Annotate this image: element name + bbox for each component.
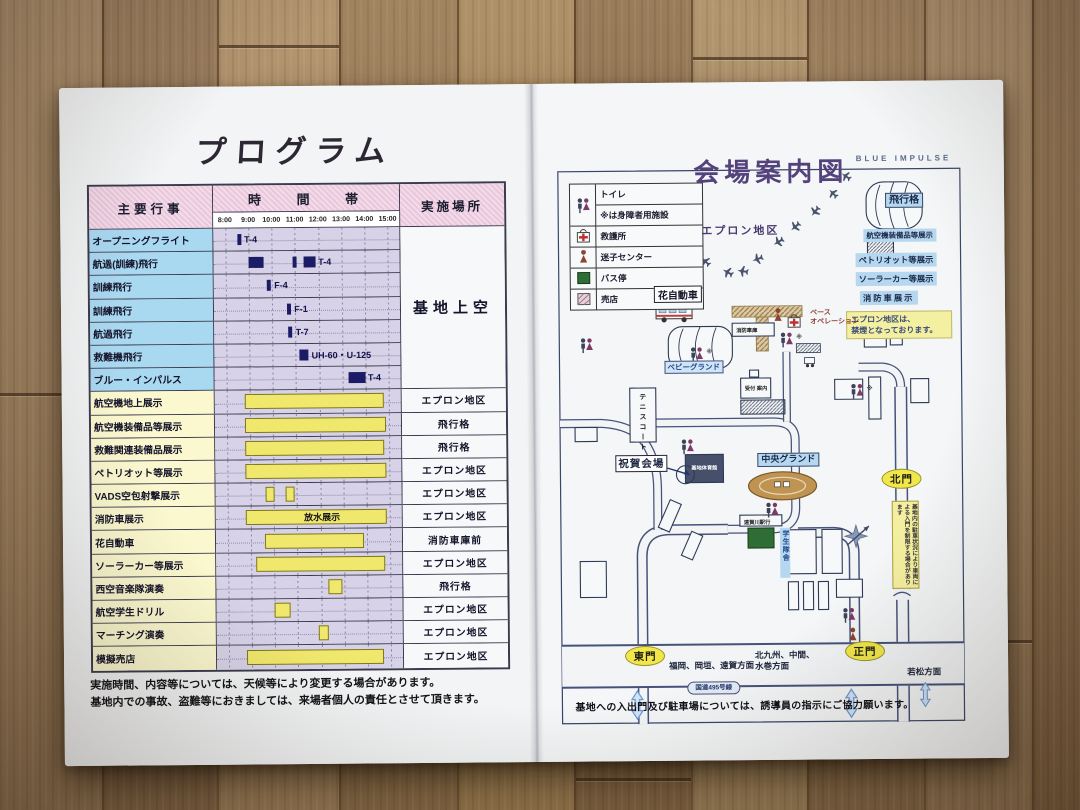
gantt-bar — [266, 487, 275, 502]
gantt-cell — [216, 529, 403, 554]
event-row-label: 模擬売店 — [93, 646, 217, 670]
first-aid-icon — [570, 226, 596, 247]
gantt-gridline — [388, 320, 389, 342]
gantt-gridline — [295, 228, 296, 250]
time-tick: 11:00 — [286, 216, 304, 223]
gantt-gridline — [389, 366, 390, 388]
gantt-gridline — [389, 413, 390, 435]
gantt-bar — [265, 533, 365, 549]
gantt-gridline — [319, 367, 320, 389]
event-row-label: ソーラーカー等展示 — [92, 553, 216, 577]
reception-label: 受付 案内 — [745, 384, 768, 392]
event-row-label: 航過飛行 — [90, 322, 214, 346]
gantt-gridline — [271, 228, 272, 250]
gantt-gridline — [390, 506, 391, 528]
event-row-label: 救難関連装備品展示 — [91, 437, 215, 461]
map-bottom-note: 基地への入出門及び駐車場については、誘導員の指示にご協力願います。 — [575, 696, 913, 714]
program-notes: 実施時間、内容等については、天候等により変更する場合があります。 基地内での事故… — [90, 674, 514, 712]
program-booklet: プログラム 主要行事 時 間 帯 実施場所 8:00 9:00 10:00 11… — [59, 80, 1009, 766]
gantt-gridline — [226, 368, 227, 390]
gantt-gridline — [225, 229, 226, 251]
gantt-gridline — [228, 530, 229, 552]
gantt-gridline — [388, 274, 389, 296]
place-cell: エプロン地区 — [404, 644, 508, 668]
gantt-gridline — [272, 275, 273, 297]
gantt-gridline — [365, 251, 366, 273]
student-dorm-label: 学生隊舎 — [780, 528, 790, 578]
gantt-gridline — [365, 297, 366, 319]
gantt-bar — [285, 487, 294, 502]
gantt-cell: T-4 — [215, 366, 402, 391]
baby-ground-label: ベビーグランド — [664, 360, 723, 374]
venue-map-title: 会場案内図 — [671, 151, 871, 190]
gantt-gridline — [225, 275, 226, 297]
gantt-cell — [217, 621, 404, 646]
gantt-cell: F-1 — [214, 297, 401, 322]
gantt-gridline — [388, 297, 389, 319]
gantt-gridline — [297, 483, 298, 505]
legend-lost-child: 迷子センター — [597, 252, 653, 263]
gantt-gridline — [364, 227, 365, 249]
gantt-gridline — [389, 390, 390, 412]
gantt-gridline — [319, 297, 320, 319]
awning — [796, 343, 820, 352]
gantt-gridline — [252, 623, 253, 645]
gym-label: 基地体育館 — [685, 464, 723, 471]
gantt-gridline — [273, 367, 274, 389]
base-operations-label: ベース オペレーション — [810, 309, 859, 327]
floor-plank — [1032, 0, 1080, 810]
time-tick: 13:00 — [332, 216, 350, 223]
event-row-label: 航空学生ドリル — [93, 600, 217, 624]
gantt-gridline — [250, 484, 251, 506]
solar-car-exhibit-label: ソーラーカー等展示 — [856, 271, 937, 286]
place-cell: エプロン地区 — [403, 504, 507, 528]
gantt-bar-label: T-4 — [318, 257, 331, 267]
gantt-gridline — [228, 600, 229, 622]
gantt-bar-label: F-1 — [294, 304, 308, 314]
gantt-gridline — [249, 298, 250, 320]
compass-icon — [845, 525, 869, 547]
gantt-gridline — [342, 367, 343, 389]
gantt-gridline — [225, 252, 226, 274]
gantt-cell — [216, 552, 403, 577]
gantt-bar-label: T-7 — [296, 327, 309, 337]
gantt-cell — [215, 413, 402, 438]
gantt-bar — [245, 440, 384, 456]
gantt-gridline — [391, 621, 392, 643]
time-tick: 15:00 — [379, 215, 397, 222]
event-row-label: VADS空包射撃展示 — [92, 484, 216, 508]
central-ground-track — [748, 472, 816, 501]
station-bus-label: 遠賀川駅行 — [744, 518, 771, 526]
place-cell-sky: 基地上空 — [400, 226, 505, 389]
gantt-gridline — [228, 623, 229, 645]
bus-stop-square — [748, 528, 774, 548]
hangar-label: 飛行格 — [885, 193, 923, 208]
gantt-bar-label: UH-60・U-125 — [312, 348, 372, 362]
gantt-gridline — [345, 622, 346, 644]
legend-aid: 救護所 — [596, 231, 626, 242]
direction-kitakyushu: 北九州、中間、 水巻方面 — [755, 650, 815, 673]
event-row-label: 航空機装備品等展示 — [91, 414, 215, 438]
gantt-gridline — [296, 367, 297, 389]
program-title: プログラム — [58, 124, 532, 173]
legend-toilet: トイレ — [596, 189, 626, 200]
gantt-gridline — [226, 345, 227, 367]
gantt-gridline — [272, 298, 273, 320]
place-cell: 消防車庫前 — [403, 528, 507, 552]
time-tick: 9:00 — [241, 216, 255, 223]
event-row-label: 花自動車 — [92, 530, 216, 554]
gantt-gridline — [227, 484, 228, 506]
event-row-label: 航過(訓練)飛行 — [90, 252, 214, 276]
central-ground-label: 中央グランド — [757, 453, 819, 467]
gantt-cell: T-7 — [214, 320, 401, 345]
celebration-venue-label: 祝賀会場 — [615, 455, 667, 472]
gantt-gridline — [272, 344, 273, 366]
place-cell: 飛行格 — [402, 435, 506, 459]
apron-area-label: エプロン地区 — [701, 222, 779, 239]
gantt-gridline — [249, 368, 250, 390]
event-row-label: 訓練飛行 — [90, 298, 214, 322]
gantt-bar — [303, 257, 316, 268]
event-row-label: 訓練飛行 — [90, 275, 214, 299]
gantt-cell: T-4 — [213, 227, 400, 252]
place-cell: 飛行格 — [402, 412, 506, 436]
gantt-gridline — [344, 599, 345, 621]
gantt-bar — [245, 416, 385, 432]
gantt-gridline — [226, 321, 227, 343]
gantt-gridline — [367, 483, 368, 505]
gantt-gridline — [249, 344, 250, 366]
gantt-gridline — [320, 483, 321, 505]
fire-truck-exhibit-label: 消防車展示 — [860, 291, 918, 306]
gantt-gridline — [249, 321, 250, 343]
gantt-gridline — [296, 344, 297, 366]
cart-icon — [804, 358, 814, 368]
gantt-bar — [289, 326, 293, 337]
note-line: 基地内での事故、盗難等におきましては、来場者個人の責任とさせて頂きます。 — [90, 691, 514, 712]
fire-garage-label: 消防車庫 — [736, 326, 757, 334]
gantt-gridline — [228, 576, 229, 598]
wc-accessible-mark: ※ — [796, 334, 802, 341]
gantt-gridline — [389, 436, 390, 458]
wc-accessible-mark: ※ — [867, 385, 873, 392]
gantt-cell — [215, 459, 402, 484]
gantt-bar — [267, 280, 271, 291]
gantt-gridline — [390, 552, 391, 574]
toilet-icon — [570, 184, 596, 226]
gantt-cell — [215, 389, 402, 414]
direction-wakamatsu: 若松方面 — [907, 666, 941, 678]
gantt-bar — [247, 649, 384, 665]
gantt-gridline — [298, 622, 299, 644]
route-495-label: 国道495号線 — [687, 681, 740, 694]
gantt-gridline — [321, 599, 322, 621]
gantt-gridline — [251, 553, 252, 575]
gantt-gridline — [390, 459, 391, 481]
gantt-gridline — [391, 598, 392, 620]
event-row-label: 消防車展示 — [92, 507, 216, 531]
gantt-gridline — [342, 320, 343, 342]
gantt-gridline — [342, 297, 343, 319]
event-row-label: 西空音楽隊演奏 — [92, 577, 216, 601]
legend-shop: 売店 — [597, 294, 618, 305]
gantt-bar — [319, 626, 329, 641]
gantt-gridline — [272, 251, 273, 273]
time-tick: 10:00 — [262, 216, 280, 223]
gantt-gridline — [227, 461, 228, 483]
gantt-gridline — [251, 599, 252, 621]
gantt-gridline — [251, 530, 252, 552]
gantt-gridline — [390, 482, 391, 504]
time-tick: 8:00 — [218, 217, 232, 224]
place-cell: エプロン地区 — [404, 597, 508, 621]
gantt-gridline — [251, 576, 252, 598]
event-row-label: オープニングフライト — [89, 229, 213, 253]
gantt-gridline — [341, 251, 342, 273]
gantt-bar-label: F-4 — [274, 281, 288, 291]
gantt-gridline — [321, 576, 322, 598]
gantt-gridline — [342, 274, 343, 296]
gantt-gridline — [227, 414, 228, 436]
time-axis: 8:00 9:00 10:00 11:00 12:00 13:00 14:00 … — [213, 211, 400, 229]
gantt-gridline — [368, 598, 369, 620]
bus-stop-icon — [571, 268, 597, 289]
col-header-events: 主要行事 — [89, 186, 213, 230]
gantt-cell — [216, 482, 403, 507]
place-cell: エプロン地区 — [403, 551, 507, 575]
gantt-cell — [215, 436, 402, 461]
gantt-gridline — [365, 274, 366, 296]
gantt-gridline — [227, 507, 228, 529]
gantt-gridline — [365, 320, 366, 342]
gantt-bar — [275, 603, 291, 618]
event-row-label: ブルー・インパルス — [91, 368, 215, 392]
place-cell: エプロン地区 — [402, 389, 506, 413]
gantt-bar — [246, 463, 386, 479]
gantt-gridline — [227, 437, 228, 459]
program-page: プログラム 主要行事 時 間 帯 実施場所 8:00 9:00 10:00 11… — [59, 84, 536, 766]
gantt-bar-label: T-4 — [368, 373, 381, 383]
gantt-bar — [287, 303, 291, 314]
event-row-label: 航空機地上展示 — [91, 391, 215, 415]
gantt-bar-label: T-4 — [244, 235, 257, 245]
wc-accessible-mark: ※ — [706, 348, 712, 355]
gantt-gridline — [343, 483, 344, 505]
gantt-gridline — [344, 575, 345, 597]
time-tick: 14:00 — [355, 215, 373, 222]
gantt-bar — [245, 393, 384, 409]
gantt-cell: T-4 — [213, 250, 400, 275]
gantt-gridline — [341, 228, 342, 250]
tennis-court-label: テニスコート — [637, 393, 648, 453]
gantt-gridline — [318, 228, 319, 250]
lost-child-icon — [570, 247, 596, 268]
gantt-gridline — [389, 343, 390, 365]
shop-icon — [571, 289, 597, 309]
gantt-gridline — [367, 529, 368, 551]
gantt-gridline — [391, 575, 392, 597]
gantt-gridline — [275, 622, 276, 644]
place-cell: 飛行格 — [403, 574, 507, 598]
gantt-gridline — [226, 391, 227, 413]
event-row-label: ペトリオット等展示 — [91, 461, 215, 485]
gantt-bar — [248, 257, 263, 268]
gantt-gridline — [388, 227, 389, 249]
legend-bus: バス停 — [597, 273, 627, 284]
gantt-gridline — [228, 553, 229, 575]
program-table: 主要行事 時 間 帯 実施場所 8:00 9:00 10:00 11:00 12… — [87, 181, 510, 672]
equipment-exhibit-label: 航空機装備品等展示 — [863, 228, 936, 242]
event-row-label: マーチング演奏 — [93, 623, 217, 647]
flower-car-label: 花自動車 — [654, 286, 702, 303]
gantt-bar — [238, 234, 242, 245]
place-cell: エプロン地区 — [404, 620, 508, 644]
gantt-gridline — [229, 646, 230, 669]
legend-toilet-note: ※は身障者用施設 — [596, 209, 669, 220]
gantt-gridline — [274, 576, 275, 598]
gantt-gridline — [368, 622, 369, 644]
gantt-cell: F-4 — [214, 274, 401, 299]
time-tick: 12:00 — [309, 216, 327, 223]
direction-fukuoka: 福岡、岡垣、遠賀方面 — [669, 660, 754, 672]
gantt-gridline — [319, 321, 320, 343]
gantt-bar — [299, 349, 308, 360]
gantt-gridline — [390, 529, 391, 551]
col-header-timeband: 時 間 帯 — [213, 184, 400, 213]
gantt-gridline — [249, 275, 250, 297]
gantt-bar — [256, 556, 386, 572]
gantt-bar — [348, 372, 366, 383]
photo-of-event-program-booklet: { "colors":{"gate_yellow":"#f1e74b","lab… — [0, 0, 1080, 810]
gantt-gridline — [298, 599, 299, 621]
gantt-cell — [217, 645, 404, 670]
parking-restriction-note: 基地内の駐車状況により車両による入門を制限する場合があります — [892, 501, 919, 589]
col-header-place: 実施場所 — [400, 183, 504, 227]
gantt-gridline — [366, 367, 367, 389]
gantt-gridline — [226, 298, 227, 320]
gantt-cell: UH-60・U-125 — [214, 343, 401, 368]
gantt-gridline — [391, 645, 392, 668]
gantt-bar — [293, 257, 297, 268]
event-row-label: 救難機飛行 — [90, 345, 214, 369]
gantt-gridline — [318, 274, 319, 296]
gantt-bar-label: 放水展示 — [304, 511, 340, 524]
gantt-cell — [217, 598, 404, 623]
gantt-gridline — [295, 274, 296, 296]
patriot-exhibit-label: ペトリオット等展示 — [856, 252, 937, 267]
gantt-gridline — [298, 576, 299, 598]
gantt-cell: 放水展示 — [216, 505, 403, 530]
gantt-gridline — [367, 575, 368, 597]
place-cell: エプロン地区 — [402, 458, 506, 482]
place-cell: エプロン地区 — [403, 481, 507, 505]
venue-map-page: BLUE IMPULSE 会場案内図 — [532, 80, 1009, 762]
no-smoking-note: エプロン地区は、 禁煙となっております。 — [846, 310, 952, 339]
gantt-bar — [328, 579, 343, 594]
gantt-gridline — [388, 250, 389, 272]
gantt-cell — [216, 575, 403, 600]
gantt-gridline — [272, 321, 273, 343]
